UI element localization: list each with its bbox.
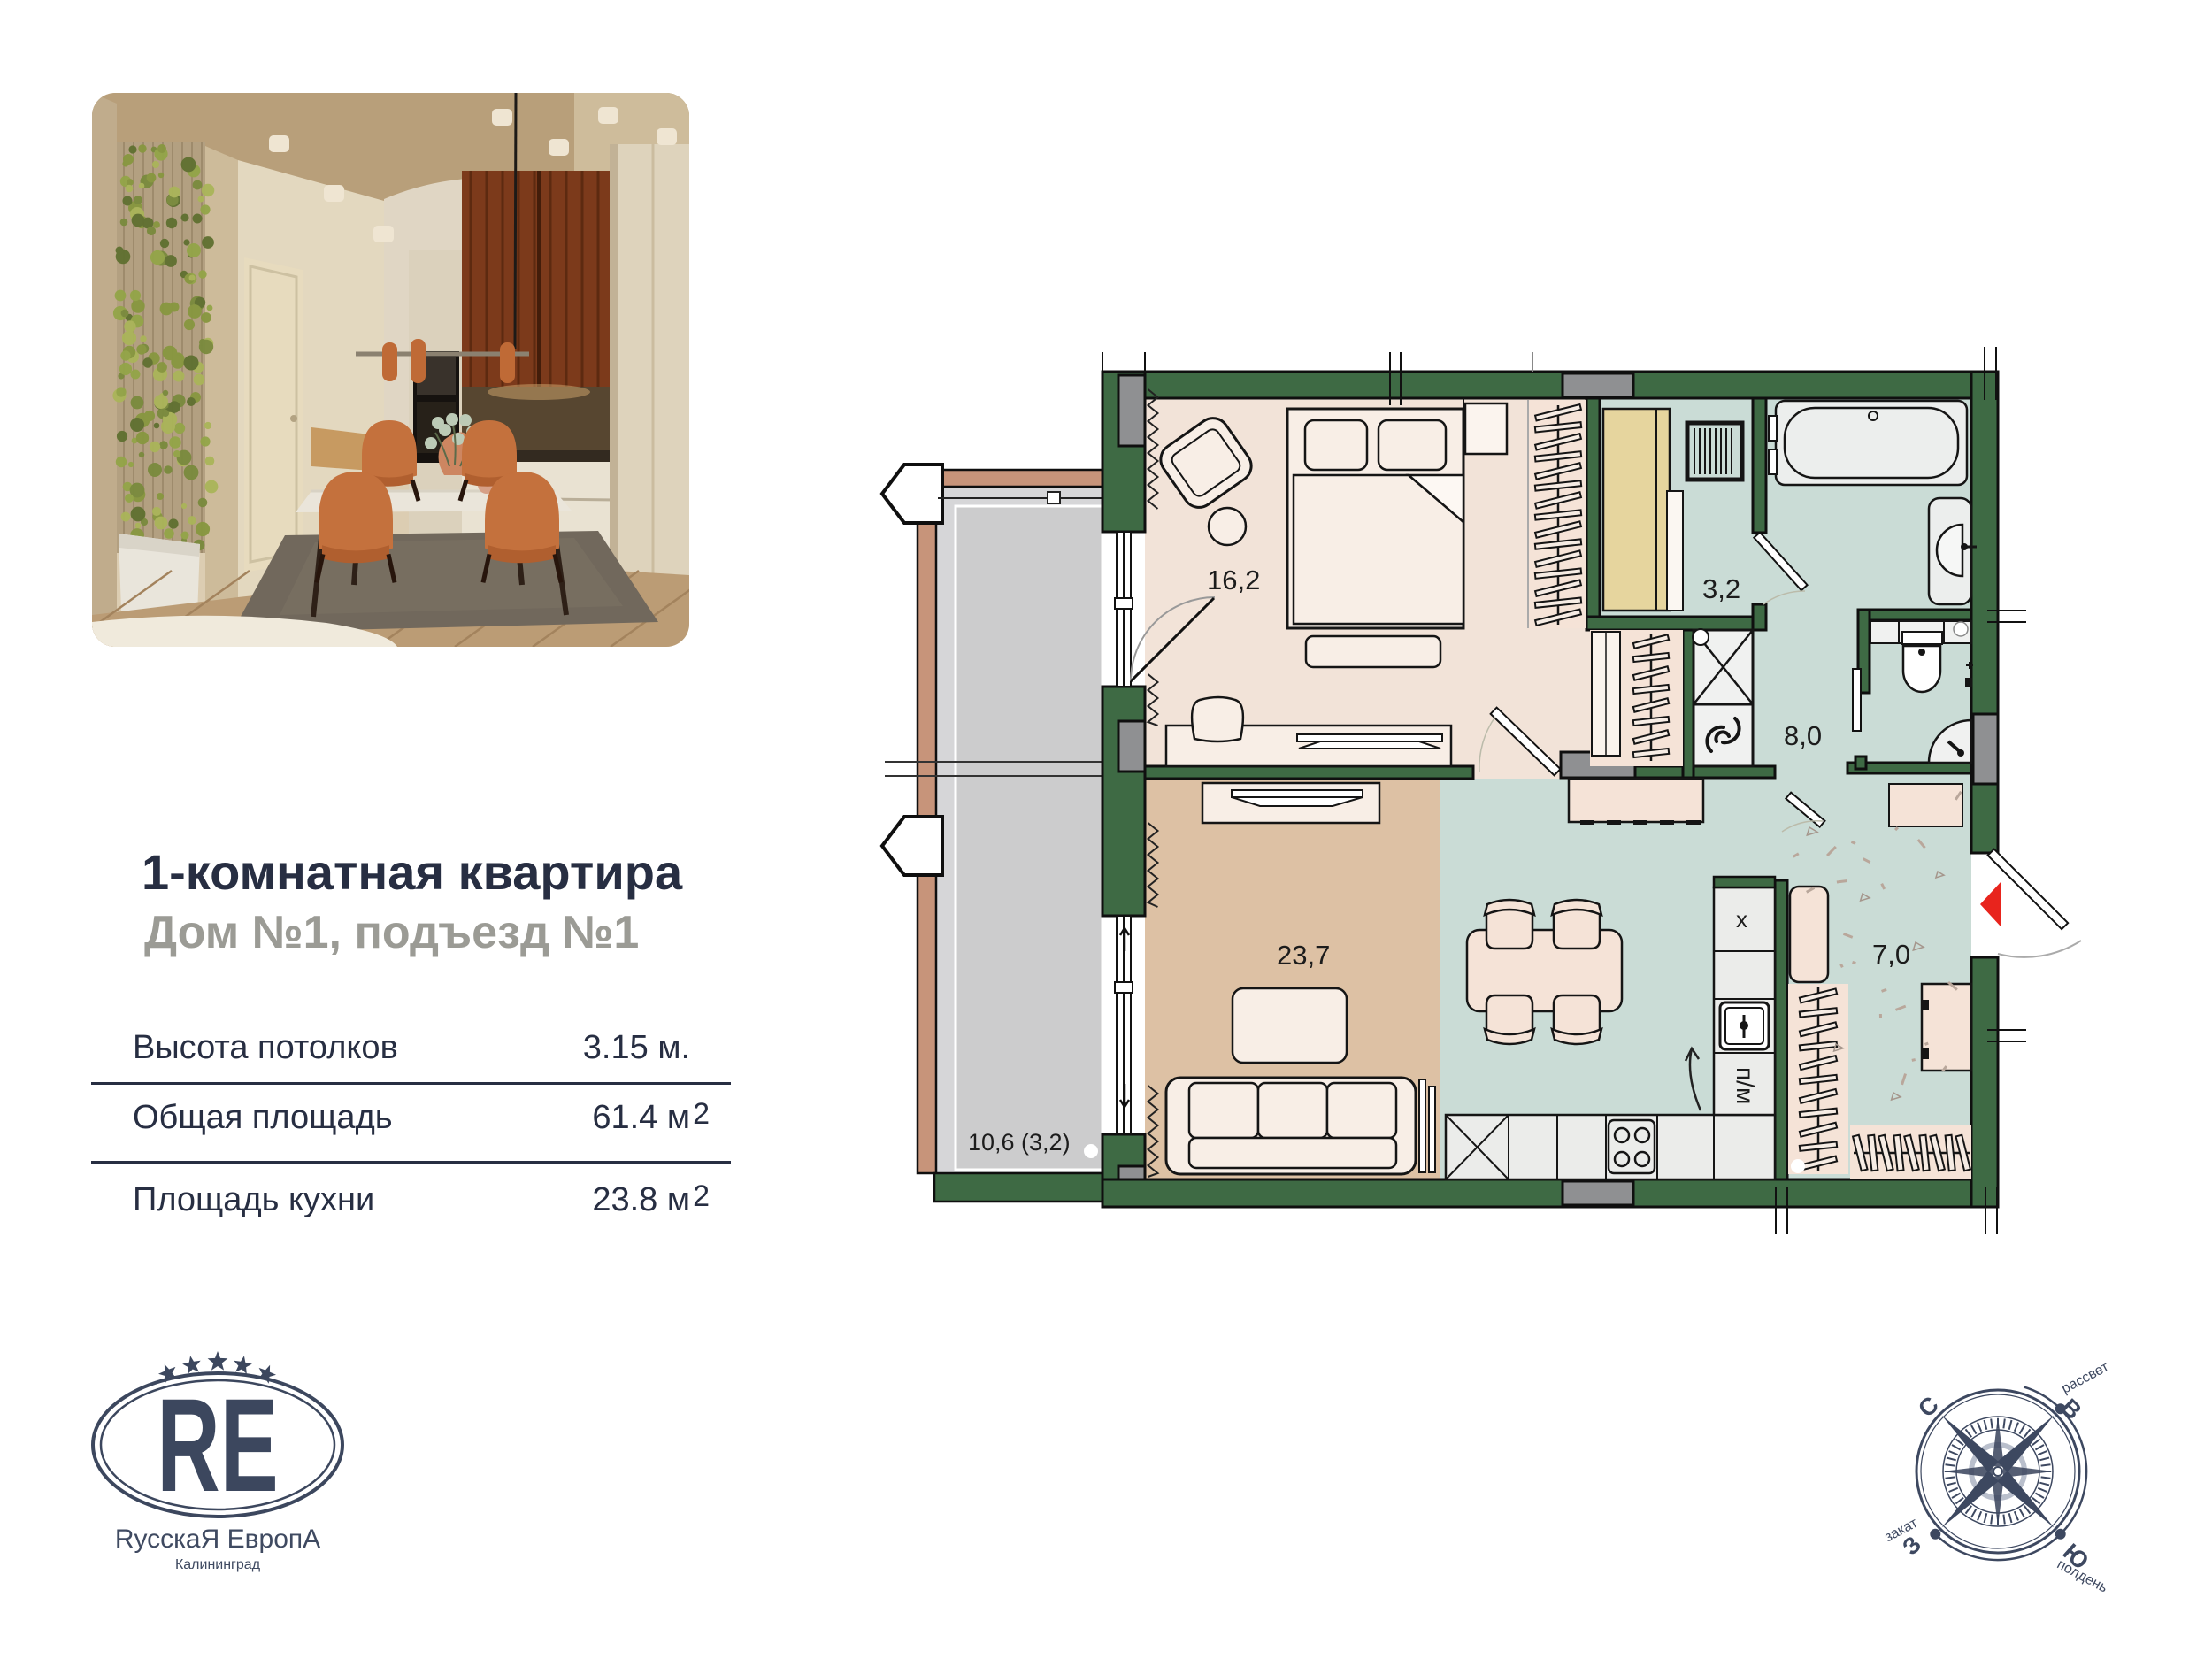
svg-text:23,7: 23,7 bbox=[1277, 940, 1330, 971]
svg-text:п/м: п/м bbox=[1732, 1067, 1759, 1104]
svg-text:8,0: 8,0 bbox=[1784, 720, 1822, 751]
svg-text:рассвет: рассвет bbox=[2059, 1359, 2112, 1396]
svg-text:10,6 (3,2): 10,6 (3,2) bbox=[968, 1129, 1071, 1156]
svg-text:RусскаЯ ЕвропА: RусскаЯ ЕвропА bbox=[115, 1525, 320, 1554]
svg-text:16,2: 16,2 bbox=[1207, 565, 1260, 595]
svg-text:RE: RE bbox=[157, 1371, 279, 1519]
svg-text:Калининград: Калининград bbox=[175, 1557, 261, 1572]
svg-text:С: С bbox=[1913, 1392, 1944, 1423]
svg-text:3,2: 3,2 bbox=[1702, 573, 1740, 604]
svg-text:x: x bbox=[1736, 906, 1747, 933]
svg-text:7,0: 7,0 bbox=[1872, 939, 1910, 970]
